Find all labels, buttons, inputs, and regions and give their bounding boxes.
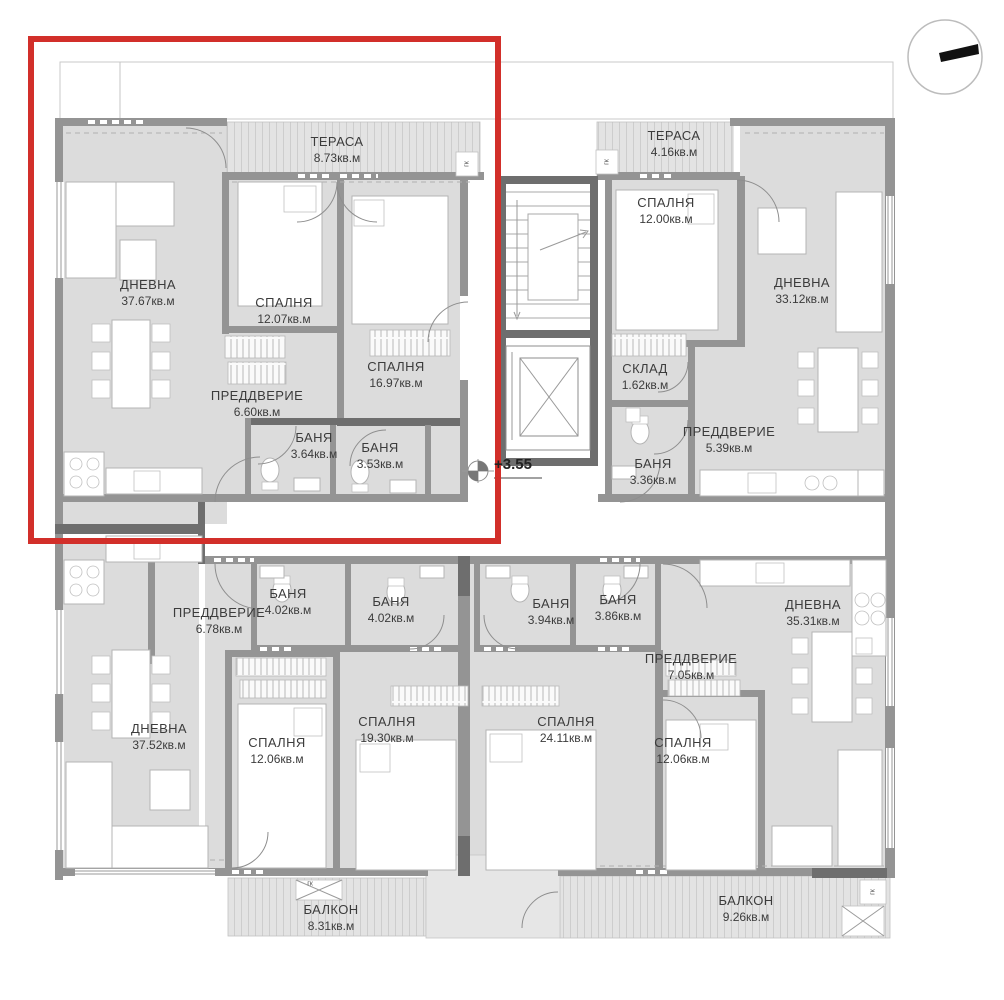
floor-plan: +3.55 ТЕРАСА 8.73кв.м ДНЕВНА 37.67кв.м С… [0,0,1004,1000]
north-arrow-icon [906,18,984,96]
gk-annotation: гк [604,159,611,165]
gk-annotation: гк [307,881,313,888]
selected-apartment-highlight[interactable] [28,36,501,544]
gk-annotation: гк [464,161,471,167]
level-marker-value: +3.55 [494,456,532,473]
level-marker: +3.55 [494,456,532,473]
gk-annotation: гк [870,889,877,895]
